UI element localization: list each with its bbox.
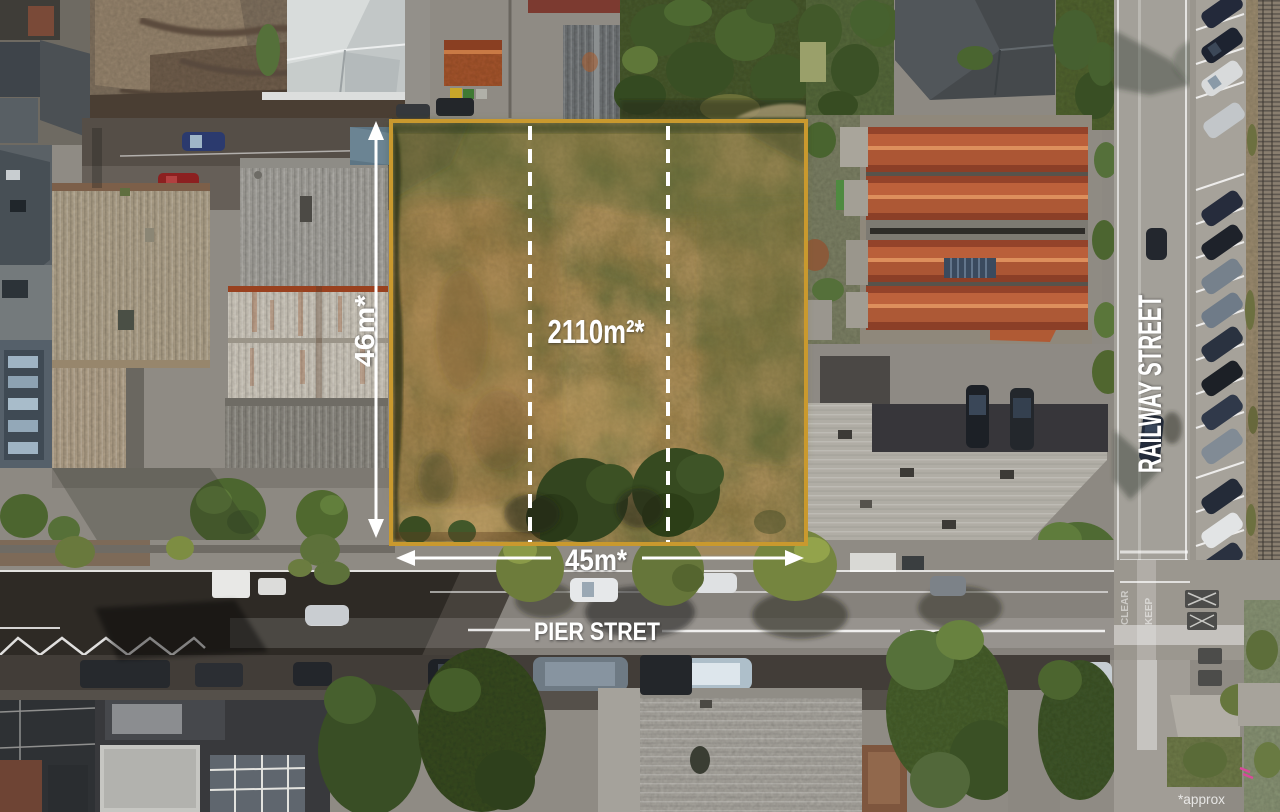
- svg-text:2110m²*: 2110m²*: [548, 313, 645, 350]
- svg-text:KEEP: KEEP: [1144, 597, 1155, 625]
- svg-text:*approx: *approx: [1178, 791, 1225, 807]
- svg-text:45m*: 45m*: [565, 544, 627, 577]
- svg-text:46m*: 46m*: [349, 295, 380, 367]
- svg-text:CLEAR: CLEAR: [1120, 590, 1131, 625]
- svg-text:RAILWAY STREET: RAILWAY STREET: [1132, 295, 1168, 473]
- svg-text:PIER STRET: PIER STRET: [534, 618, 660, 646]
